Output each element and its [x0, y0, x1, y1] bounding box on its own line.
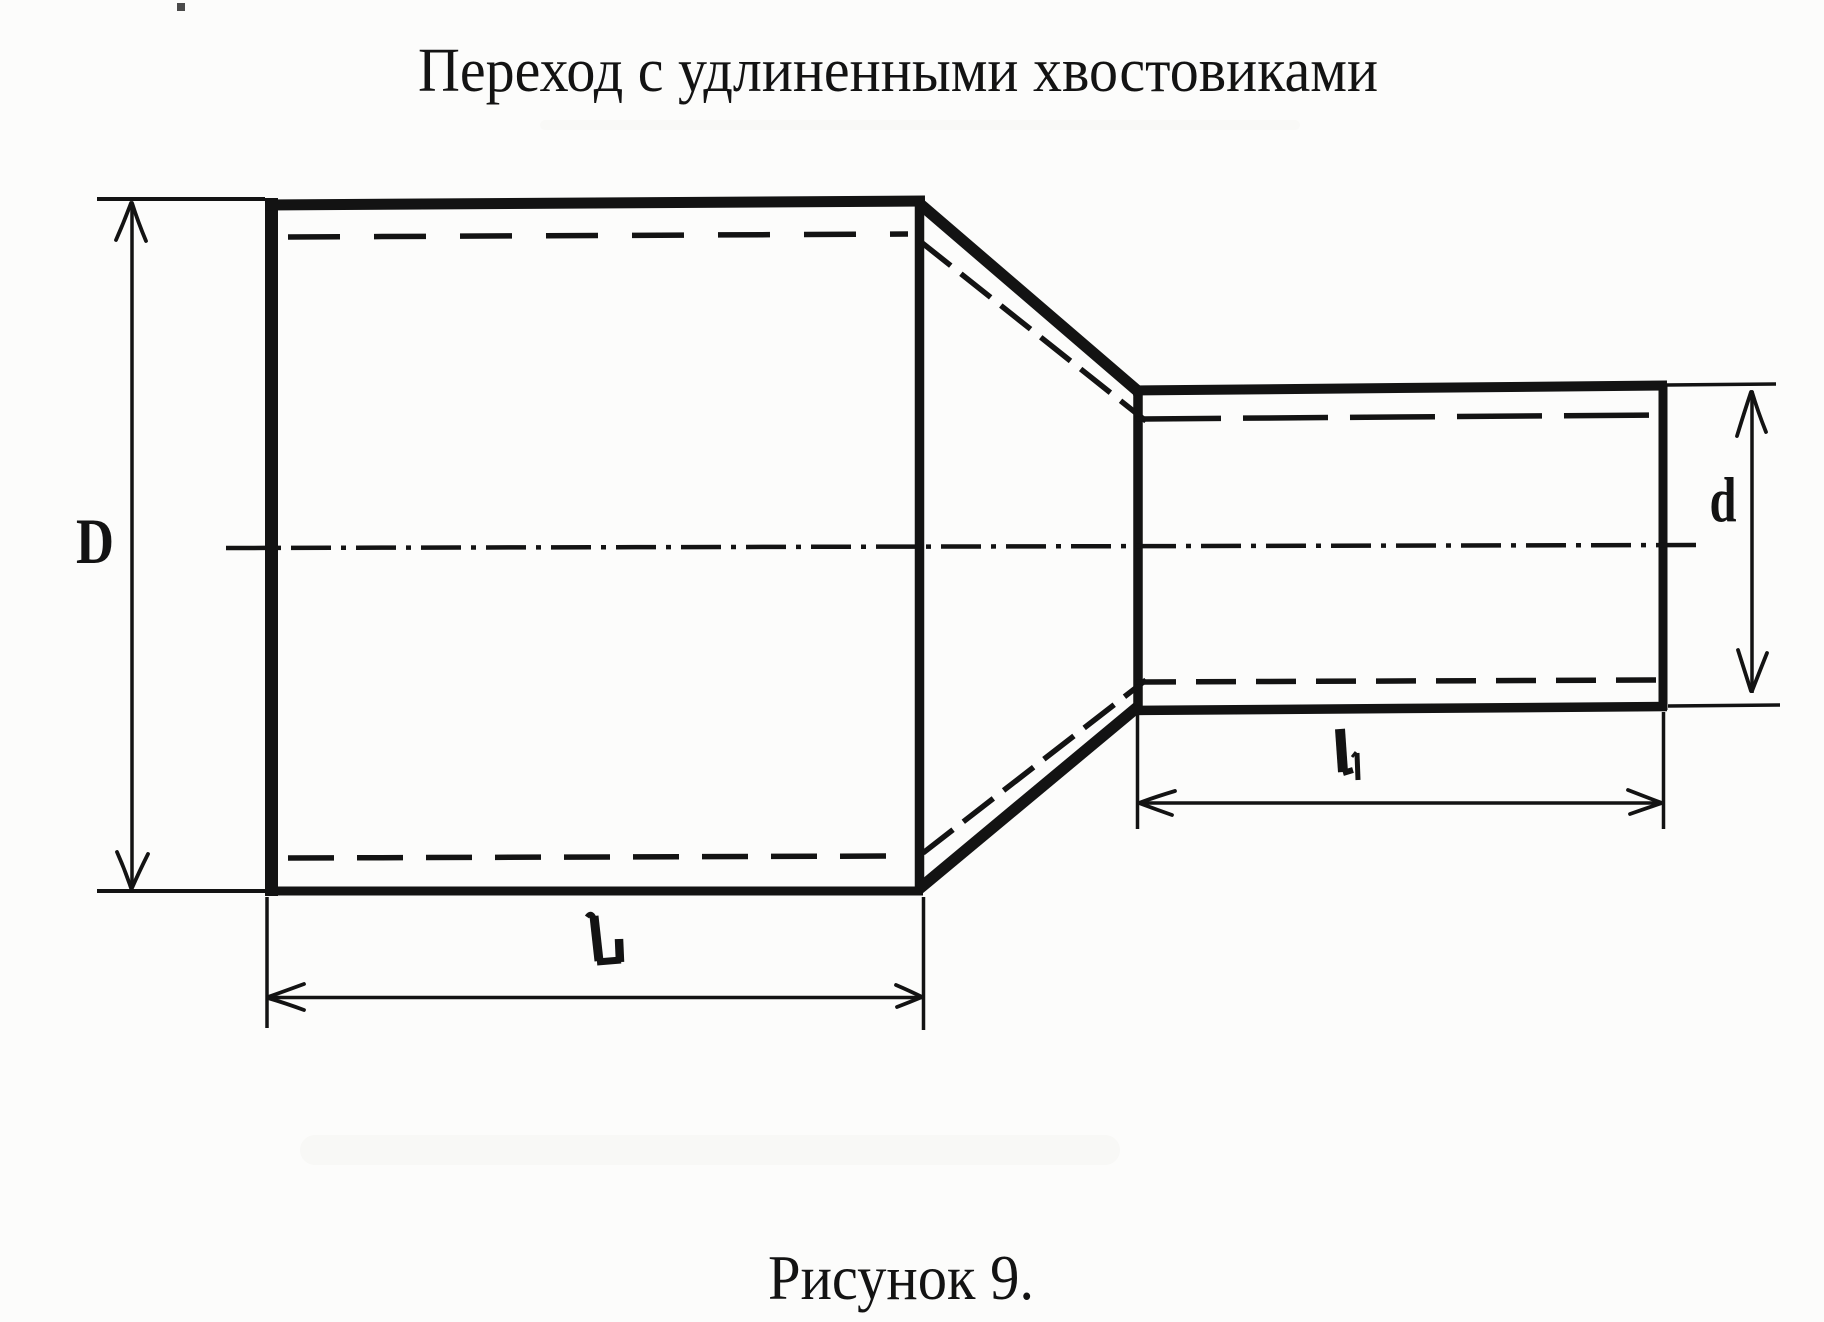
svg-text:Рисунок 9.: Рисунок 9. — [768, 1242, 1034, 1313]
svg-text:Переход с удлиненными хвостови: Переход с удлиненными хвостовиками — [418, 37, 1378, 105]
svg-text:D: D — [76, 506, 114, 578]
svg-text:d: d — [1710, 465, 1737, 535]
